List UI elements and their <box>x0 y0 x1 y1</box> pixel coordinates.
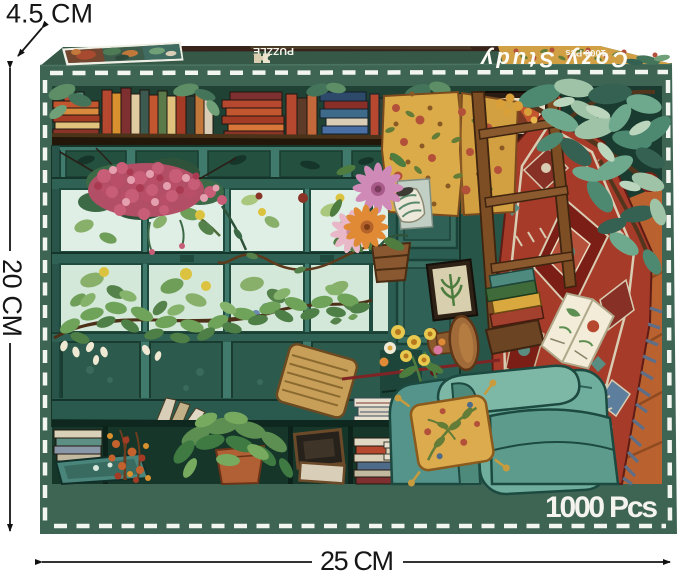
svg-text:4.5 CM: 4.5 CM <box>6 0 93 29</box>
svg-text:25 CM: 25 CM <box>320 546 394 573</box>
svg-text:20 CM: 20 CM <box>0 259 27 337</box>
svg-text:1000 Pcs: 1000 Pcs <box>545 491 658 524</box>
svg-text:1000 Pcs: 1000 Pcs <box>565 47 606 58</box>
